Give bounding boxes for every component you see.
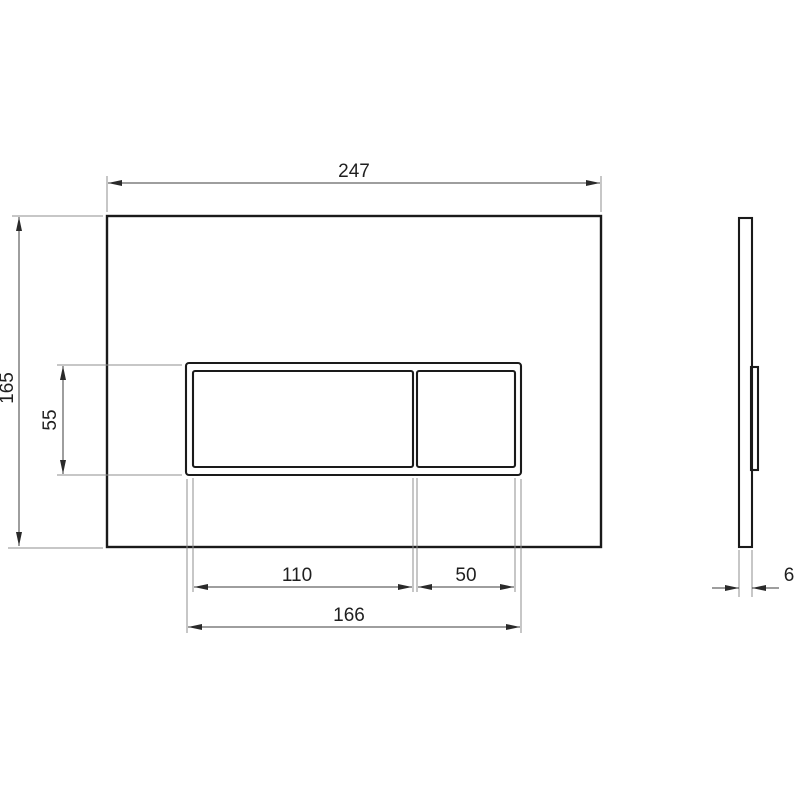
arrowhead-left [725,585,739,591]
dimension-label-plate-thickness: 6 [784,565,795,586]
arrowhead-top [60,366,66,380]
dimension-button-area-width: 166 [187,479,521,633]
technical-drawing-canvas: 247 165 55 110 50 [0,0,800,800]
arrowhead-right [752,585,766,591]
dimension-small-button-width: 50 [417,478,515,592]
dimension-label-plate-width: 247 [338,161,370,182]
front-view [107,216,601,547]
dimension-plate-height: 165 [0,216,103,548]
arrowhead-bottom [60,460,66,474]
side-button-protrusion [751,367,758,470]
button-frame-outline [186,363,521,475]
dimension-plate-width: 247 [107,161,601,212]
arrowhead-left [194,584,208,590]
dimension-label-small-button-width: 50 [455,565,476,586]
dimension-label-button-area-width: 166 [333,605,365,626]
arrowhead-left [108,180,122,186]
arrowhead-right [398,584,412,590]
arrowhead-right [500,584,514,590]
dimension-label-large-button-width: 110 [282,565,312,586]
arrowhead-top [16,217,22,231]
dimension-large-button-width: 110 [193,478,413,592]
dimension-plate-thickness: 6 [712,550,794,597]
drawing-page: 247 165 55 110 50 [0,0,800,800]
plate-outline [107,216,601,547]
arrowhead-right [506,624,520,630]
side-view [739,218,758,547]
arrowhead-bottom [16,532,22,546]
large-flush-button [193,371,413,467]
dimension-button-height: 55 [40,365,182,475]
arrowhead-left [188,624,202,630]
dimension-label-plate-height: 165 [0,372,18,404]
arrowhead-left [418,584,432,590]
arrowhead-right [586,180,600,186]
small-flush-button [417,371,515,467]
dimension-label-button-height: 55 [40,409,61,430]
